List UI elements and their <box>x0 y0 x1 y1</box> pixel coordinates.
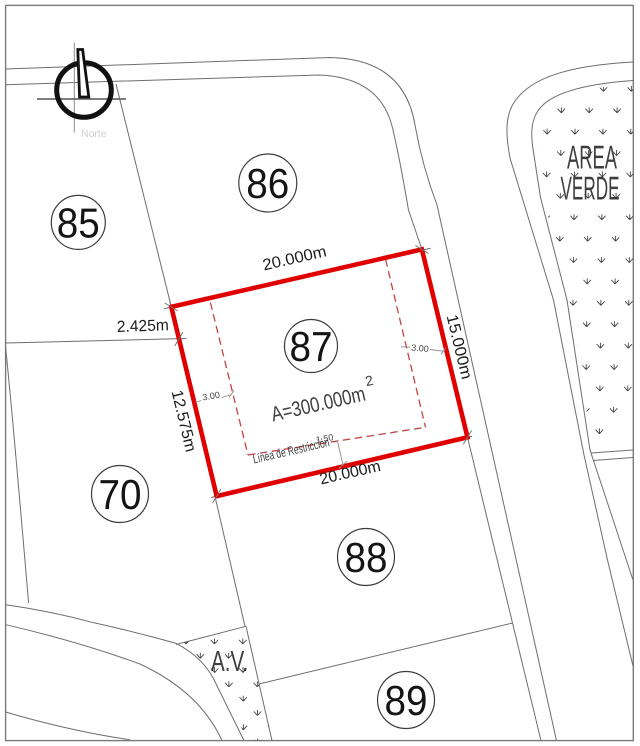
svg-text:2.425m: 2.425m <box>117 317 170 336</box>
svg-text:87: 87 <box>290 323 333 370</box>
svg-text:89: 89 <box>385 677 428 724</box>
svg-text:VERDE: VERDE <box>561 170 620 207</box>
svg-text:86: 86 <box>246 160 289 207</box>
svg-text:70: 70 <box>99 471 142 518</box>
svg-text:3.00: 3.00 <box>411 343 429 354</box>
svg-text:A.V.: A.V. <box>211 646 248 678</box>
svg-text:85: 85 <box>57 200 100 247</box>
svg-text:Norte: Norte <box>81 128 107 140</box>
svg-text:88: 88 <box>345 534 388 581</box>
